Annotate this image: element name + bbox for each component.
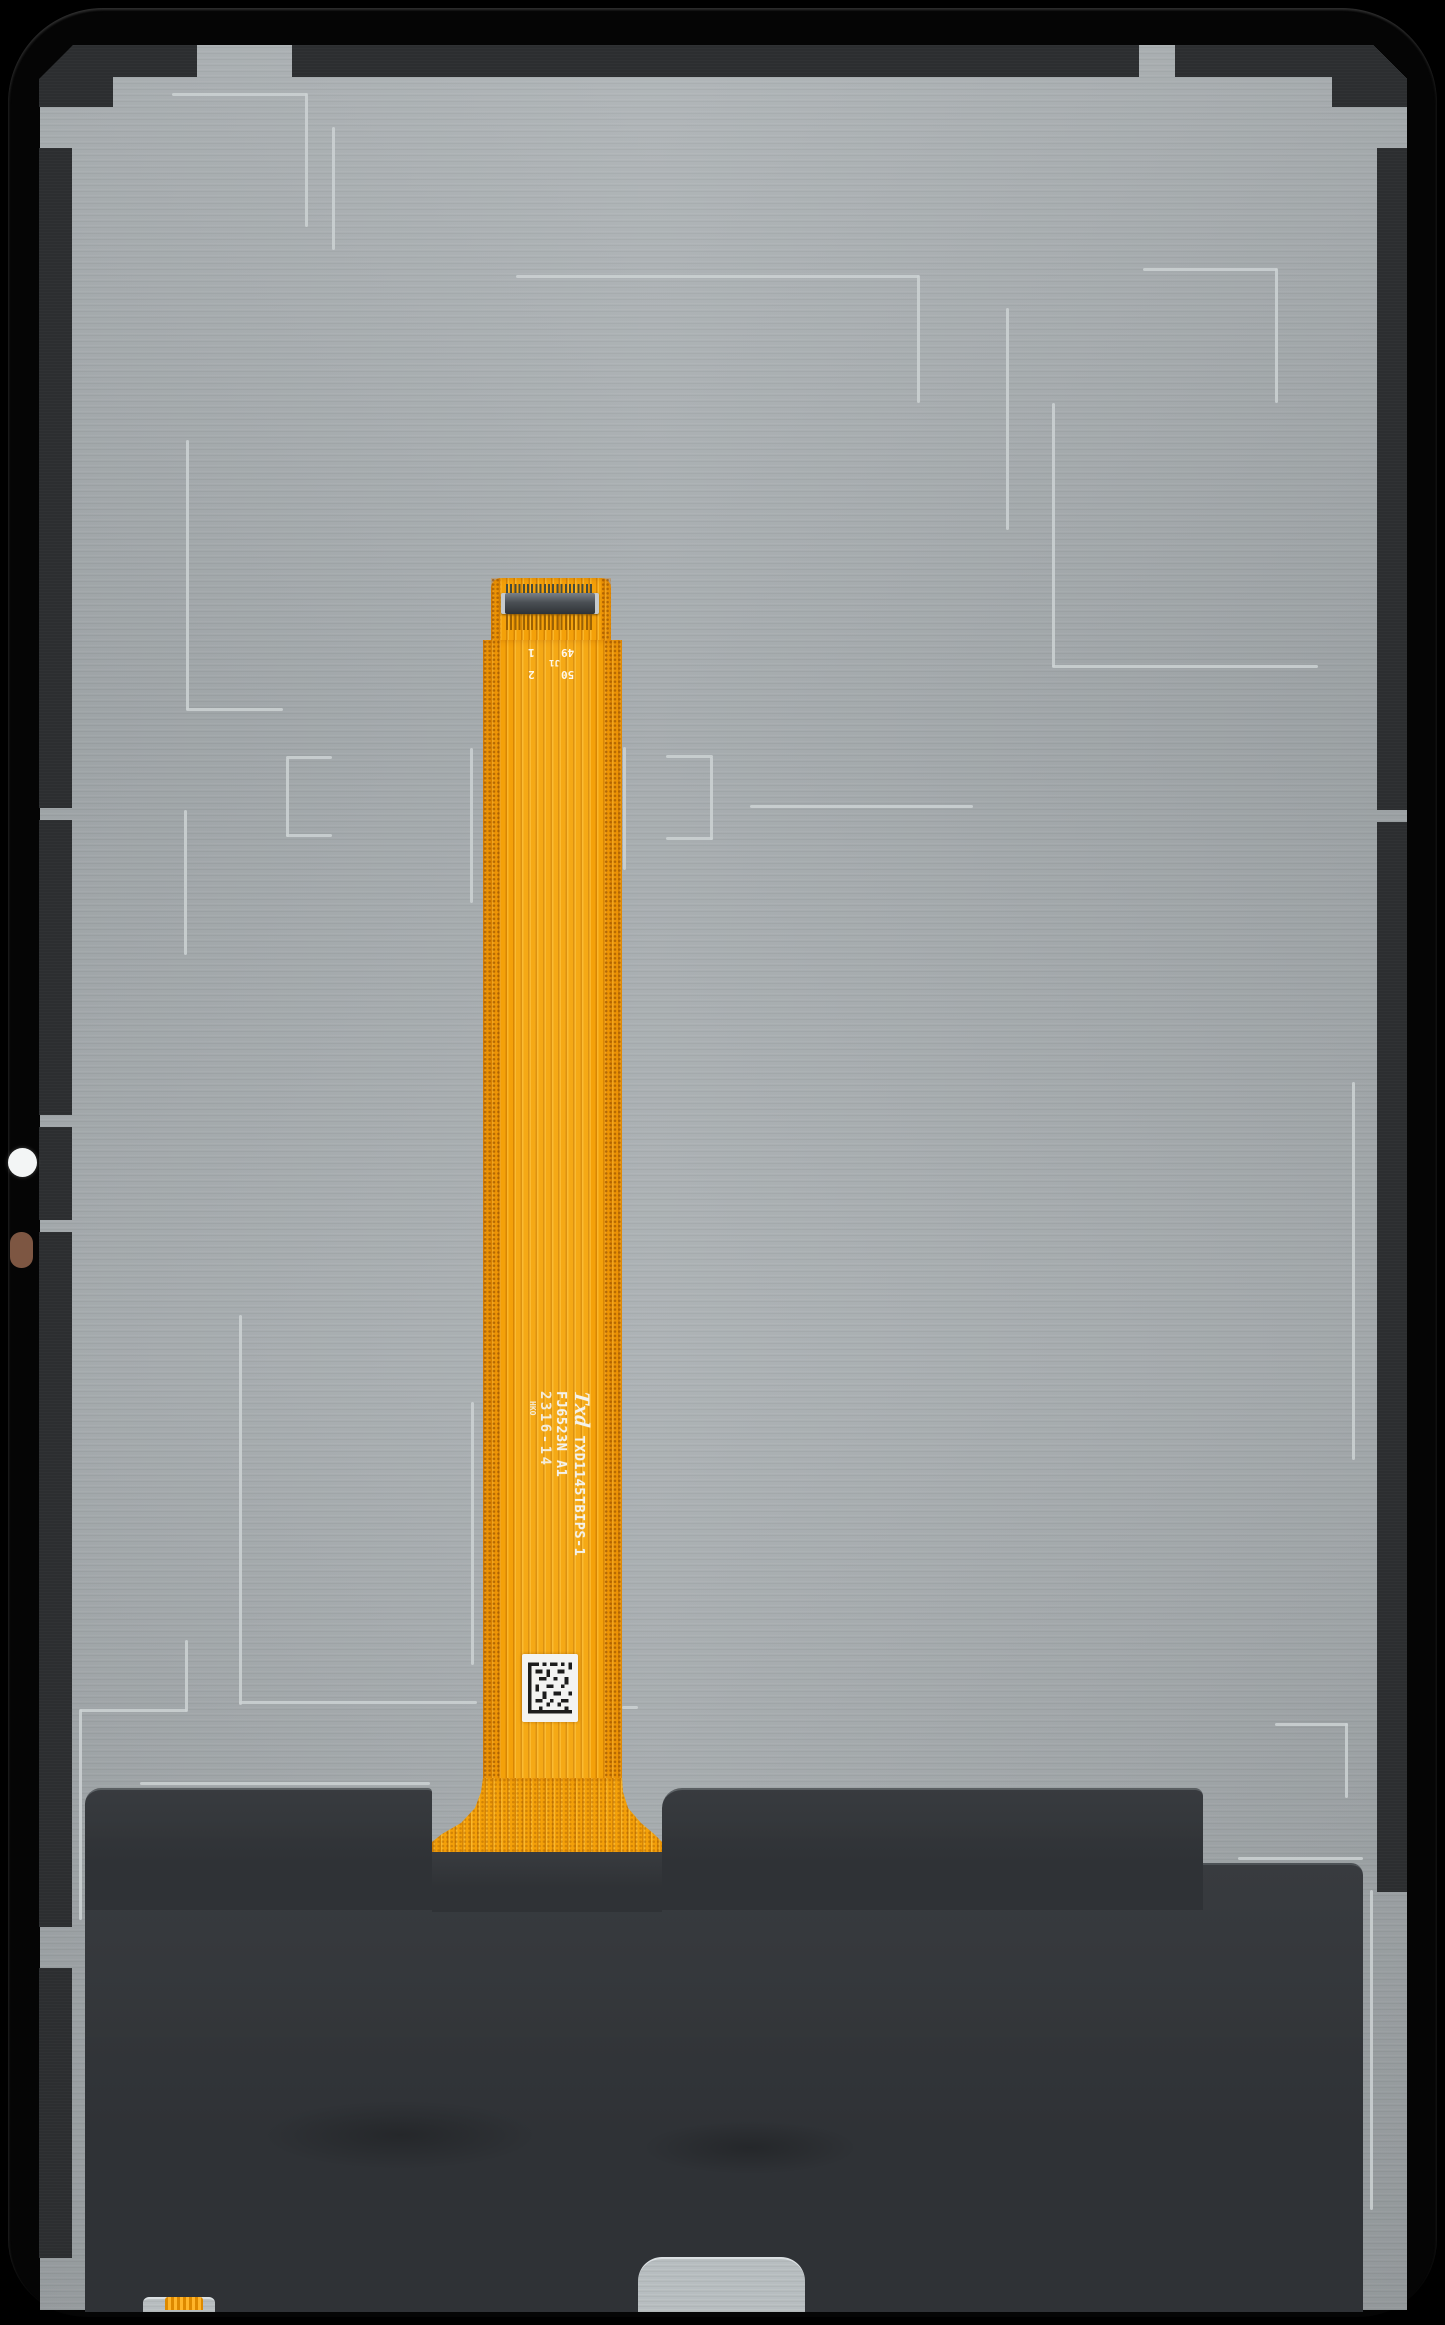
etched-line [286,758,289,837]
etched-line [1275,268,1278,403]
etched-line [80,1709,187,1712]
adhesive-strip-left [39,1127,72,1220]
part-number-text: TXD1145TBIPS-1 [571,1435,587,1556]
adhesive-strip-top-center [292,45,1139,77]
etched-line [239,1701,477,1704]
manufacturer-logo: Txd [569,1390,595,1428]
pin-label-1: 1 [528,646,535,659]
pin-label-2: 2 [528,668,535,681]
flex-dot-margin [483,640,501,1800]
etched-line [286,834,332,837]
copper-contact [10,1232,33,1268]
adhesive-strip-left [39,1968,72,2258]
etched-line [140,1782,430,1785]
flex-cable-ribbon [483,640,622,1800]
etched-line [917,275,920,403]
bottom-flex-stub [165,2297,203,2310]
model-code-text: FJ6523N A1 [553,1391,569,1595]
cover-smudge [260,2100,540,2170]
etched-line [471,1402,474,1665]
etched-line [332,127,335,250]
driver-board-cover [85,1863,1363,2312]
etched-line [1238,1857,1363,1860]
pin-label-50: 50 [561,668,574,681]
etched-line [1052,403,1055,667]
adhesive-strip-left [39,148,72,808]
etched-line [1352,1082,1355,1460]
factory-code-text: HKO [528,1401,537,1595]
etched-line [1052,665,1318,668]
etched-line [666,755,713,758]
etched-line [1275,1723,1348,1726]
etched-line [750,805,973,808]
etched-line [239,1315,242,1705]
driver-board-cover-right [662,1788,1203,1910]
flex-sheen [515,640,590,1800]
adhesive-strip-right [1377,822,1407,1892]
etched-line [184,810,187,955]
date-code-text: 2316-14 [537,1391,553,1595]
etched-line [666,837,713,840]
datamatrix-label [522,1654,578,1722]
photo-canvas: 1 2 J1 49 50 Txd TXD1145TBIPS-1 FJ6523N … [0,0,1445,2325]
etched-line [186,708,283,711]
etched-line [623,747,626,870]
adhesive-strip-right [1377,148,1407,810]
etched-line [710,757,713,840]
etched-line [470,748,473,903]
etched-line [516,275,919,278]
bottom-center-tab [638,2257,805,2312]
etched-line [1370,1890,1373,2210]
etched-line [79,1709,82,1920]
etched-line [1143,268,1277,271]
driver-board-cover-notch [432,1852,662,1912]
flex-dot-margin [604,640,622,1800]
etched-line [1345,1723,1348,1798]
pin-label-49: 49 [561,646,574,659]
adhesive-strip-left [39,1232,72,1927]
etched-line [305,93,308,227]
board-connector [501,593,599,614]
cover-smudge [640,2120,860,2175]
etched-line [1006,308,1009,530]
camera-hole [8,1148,37,1177]
etched-line [186,440,189,710]
etched-line [172,93,307,96]
etched-line [185,1640,188,1712]
adhesive-strip-left [39,820,72,1115]
datamatrix-code [528,1662,572,1714]
etched-line [622,1706,638,1709]
connector-designator-label: J1 [549,657,560,667]
driver-board-cover-left [85,1788,432,1910]
connector-pins-bottom [506,614,594,630]
etched-line [286,756,332,759]
flex-markings: Txd TXD1145TBIPS-1 FJ6523N A1 2316-14 HK… [499,1365,595,1595]
